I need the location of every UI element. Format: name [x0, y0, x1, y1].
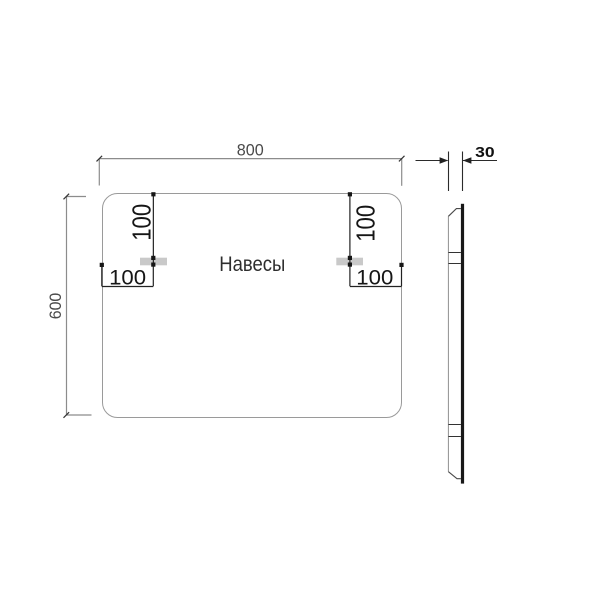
svg-text:800: 800: [237, 141, 264, 160]
svg-text:100: 100: [352, 205, 380, 242]
svg-text:Навесы: Навесы: [219, 252, 285, 276]
svg-text:100: 100: [356, 266, 393, 290]
svg-text:100: 100: [129, 204, 157, 241]
svg-text:600: 600: [46, 293, 65, 320]
svg-text:100: 100: [109, 266, 146, 290]
svg-text:30: 30: [475, 144, 495, 161]
